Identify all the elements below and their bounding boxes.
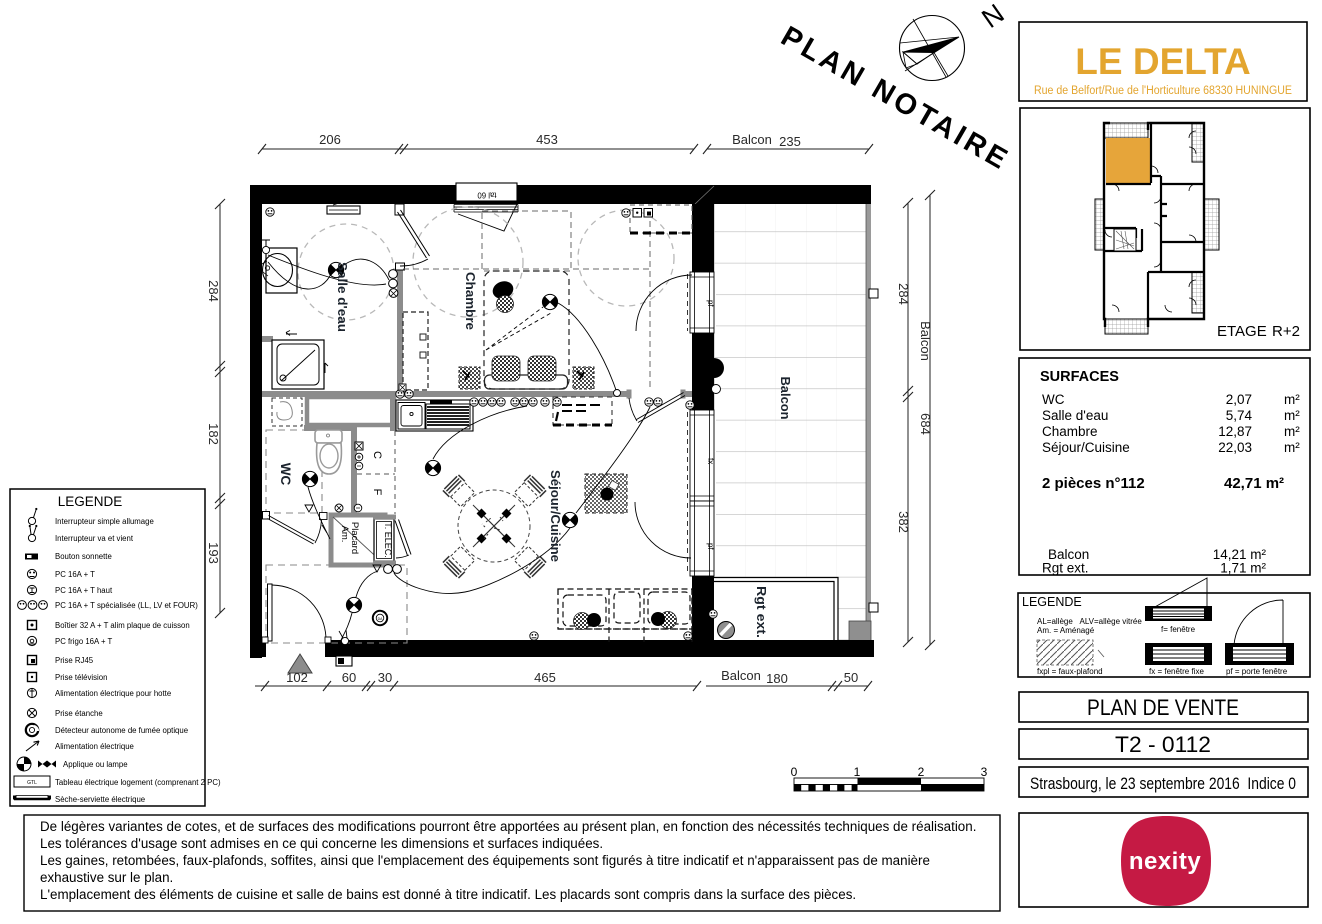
svg-text:LEGENDE: LEGENDE — [58, 494, 123, 509]
svg-text:2: 2 — [918, 765, 925, 779]
svg-text:PC frigo 16A + T: PC frigo 16A + T — [55, 637, 113, 646]
svg-text:Am.: Am. — [339, 526, 350, 543]
svg-text:Strasbourg, le 23 septembre 20: Strasbourg, le 23 septembre 2016 Indice … — [1030, 774, 1296, 793]
svg-text:0: 0 — [791, 765, 798, 779]
svg-text:684: 684 — [918, 413, 933, 435]
svg-text:PC 16A + T: PC 16A + T — [55, 570, 95, 579]
svg-text:1: 1 — [854, 765, 861, 779]
svg-text:12,87: 12,87 — [1218, 424, 1252, 439]
svg-text:Chambre: Chambre — [1042, 424, 1098, 439]
svg-text:Balcon: Balcon — [778, 377, 792, 420]
svg-text:exhaustive sur le plan.: exhaustive sur le plan. — [40, 870, 173, 885]
svg-text:2,07: 2,07 — [1226, 392, 1252, 407]
svg-text:GTL: GTL — [27, 780, 37, 786]
svg-text:ETAGE: ETAGE — [1217, 323, 1267, 340]
svg-text:Am. = Aménagé: Am. = Aménagé — [1037, 626, 1095, 635]
svg-text:m²: m² — [1284, 440, 1300, 455]
svg-text:206: 206 — [319, 132, 341, 147]
svg-text:193: 193 — [206, 542, 221, 564]
svg-text:PC 16A + T haut: PC 16A + T haut — [55, 586, 113, 595]
svg-text:Alimentation électrique: Alimentation électrique — [55, 742, 134, 751]
svg-text:453: 453 — [536, 132, 558, 147]
svg-text:fx = fenêtre fixe: fx = fenêtre fixe — [1149, 667, 1204, 676]
svg-text:PC 16A + T spécialisée (LL, LV: PC 16A + T spécialisée (LL, LV et FOUR) — [55, 601, 198, 610]
svg-text:AL=allège ALV=allège vitrée: AL=allège ALV=allège vitrée — [1037, 617, 1142, 626]
svg-text:Tableau électrique logement (c: Tableau électrique logement (comprenant … — [55, 778, 221, 787]
svg-text:Les tolérances d'usage sont ad: Les tolérances d'usage sont admises en c… — [40, 836, 603, 851]
svg-text:Boîtier 32 A + T alim plaque d: Boîtier 32 A + T alim plaque de cuisson — [55, 621, 190, 630]
svg-text:m²: m² — [1284, 392, 1300, 407]
svg-text:LE DELTA: LE DELTA — [1075, 41, 1250, 82]
svg-text:Bouton sonnette: Bouton sonnette — [55, 552, 112, 561]
svg-text:Salle d'eau: Salle d'eau — [335, 262, 350, 332]
svg-text:182: 182 — [206, 423, 221, 445]
svg-text:Balcon: Balcon — [721, 668, 761, 683]
svg-text:50: 50 — [844, 670, 858, 685]
svg-text:nexity: nexity — [1129, 848, 1202, 875]
svg-text:pf = porte fenêtre: pf = porte fenêtre — [1226, 667, 1288, 676]
svg-text:m²: m² — [1284, 424, 1300, 439]
svg-text:pf: pf — [706, 543, 715, 550]
svg-text:De légères variantes de cotes,: De légères variantes de cotes, et de sur… — [40, 819, 976, 834]
svg-text:Séjour/Cuisine: Séjour/Cuisine — [548, 470, 563, 562]
svg-text:Applique ou lampe: Applique ou lampe — [63, 760, 128, 769]
svg-text:Les gaines, retombées, faux-pl: Les gaines, retombées, faux-plafonds, so… — [40, 853, 930, 868]
svg-text:SURFACES: SURFACES — [1040, 369, 1119, 385]
svg-text:WC: WC — [278, 463, 293, 486]
svg-text:f= fenêtre: f= fenêtre — [1161, 625, 1196, 634]
svg-text:Interrupteur simple allumage: Interrupteur simple allumage — [55, 517, 154, 526]
svg-text:235: 235 — [779, 134, 801, 149]
svg-text:C: C — [371, 451, 383, 459]
svg-text:102: 102 — [286, 670, 308, 685]
svg-text:m²: m² — [1284, 408, 1300, 423]
svg-text:PLAN DE VENTE: PLAN DE VENTE — [1087, 695, 1239, 720]
svg-text:fx: fx — [706, 458, 715, 464]
svg-text:Sèche-serviette électrique: Sèche-serviette électrique — [55, 795, 145, 804]
svg-text:Séjour/Cuisine: Séjour/Cuisine — [1042, 440, 1130, 455]
svg-text:465: 465 — [534, 670, 556, 685]
svg-text:30: 30 — [378, 670, 392, 685]
svg-text:60: 60 — [342, 670, 356, 685]
svg-text:Balcon: Balcon — [918, 321, 933, 361]
svg-text:Balcon: Balcon — [732, 132, 772, 147]
svg-text:WC: WC — [1042, 392, 1065, 407]
svg-text:284: 284 — [206, 280, 221, 302]
svg-text:Prise télévision: Prise télévision — [55, 673, 107, 682]
svg-text:LEGENDE: LEGENDE — [1022, 595, 1082, 609]
svg-text:pf: pf — [706, 300, 715, 307]
svg-text:Rue de Belfort/Rue de l'Hortic: Rue de Belfort/Rue de l'Horticulture 683… — [1034, 83, 1292, 97]
svg-text:Détecteur autonome de fumée op: Détecteur autonome de fumée optique — [55, 726, 188, 735]
svg-text:Salle d'eau: Salle d'eau — [1042, 408, 1108, 423]
svg-text:5,74: 5,74 — [1226, 408, 1253, 423]
svg-text:2 pièces n°112: 2 pièces n°112 — [1042, 475, 1145, 492]
svg-text:fxpl = faux-plafond: fxpl = faux-plafond — [1037, 667, 1103, 676]
svg-text:180: 180 — [766, 671, 788, 686]
svg-text:T2 - 0112: T2 - 0112 — [1115, 732, 1211, 757]
svg-text:284: 284 — [896, 283, 911, 305]
svg-text:Prise étanche: Prise étanche — [55, 709, 103, 718]
svg-text:Alimentation électrique pour h: Alimentation électrique pour hotte — [55, 689, 171, 698]
svg-text:DA: DA — [378, 617, 384, 621]
svg-text:Rgt ext.: Rgt ext. — [1042, 561, 1089, 576]
svg-text:1,71 m²: 1,71 m² — [1220, 561, 1266, 576]
svg-text:F: F — [371, 489, 383, 496]
svg-text:Rgt ext.: Rgt ext. — [754, 586, 769, 638]
svg-text:Prise RJ45: Prise RJ45 — [55, 656, 94, 665]
svg-text:R+2: R+2 — [1272, 323, 1300, 340]
svg-text:42,71 m²: 42,71 m² — [1224, 475, 1284, 492]
svg-text:382: 382 — [896, 511, 911, 533]
svg-text:Chambre: Chambre — [463, 272, 478, 330]
svg-text:22,03: 22,03 — [1218, 440, 1252, 455]
svg-text:Interrupteur va et vient: Interrupteur va et vient — [55, 534, 134, 543]
svg-text:3: 3 — [981, 765, 988, 779]
svg-text:T. ELEC.: T. ELEC. — [383, 522, 393, 558]
svg-text:tal 60: tal 60 — [477, 191, 497, 200]
svg-text:L'emplacement des éléments de: L'emplacement des éléments de cuisine et… — [40, 887, 856, 902]
